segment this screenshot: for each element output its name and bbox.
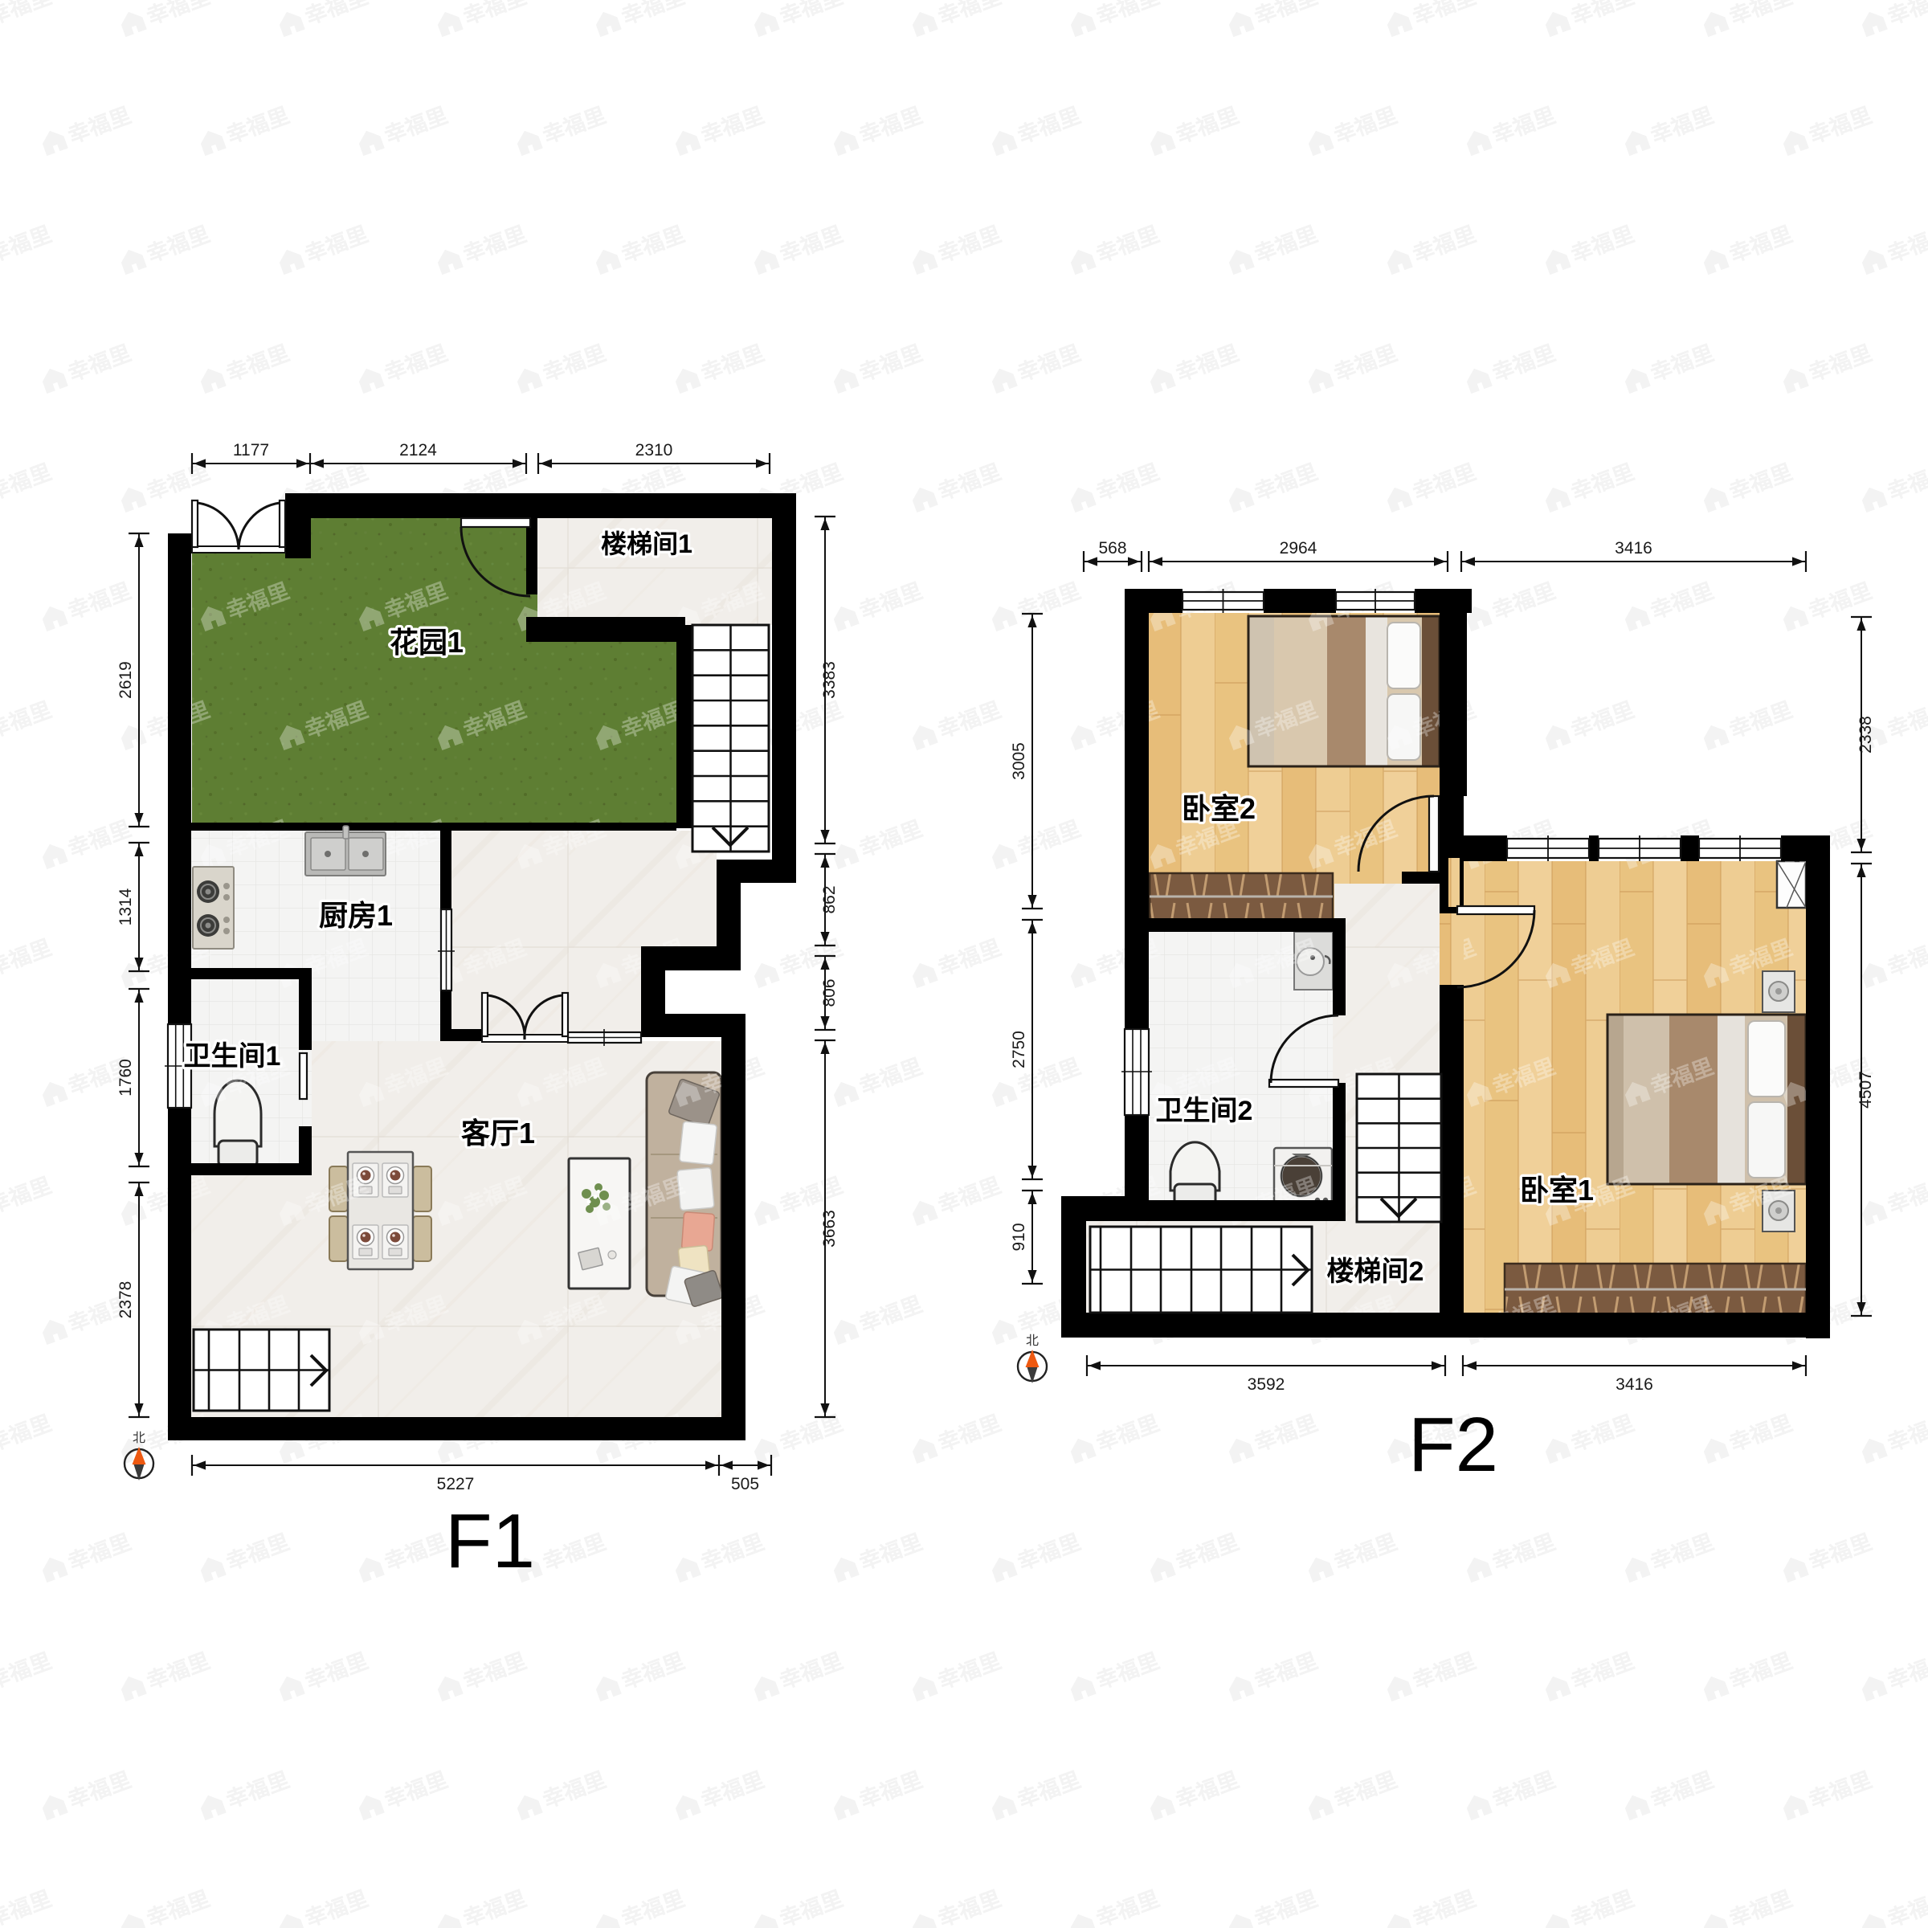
svg-text:2378: 2378 (116, 1281, 135, 1319)
svg-text:3663: 3663 (820, 1210, 839, 1248)
svg-text:568: 568 (1098, 539, 1126, 558)
svg-text:F1: F1 (445, 1498, 535, 1584)
svg-text:北: 北 (133, 1431, 145, 1445)
svg-text:3383: 3383 (820, 661, 839, 699)
svg-text:F2: F2 (1408, 1402, 1498, 1488)
svg-text:卧室2: 卧室2 (1182, 792, 1256, 825)
svg-text:1760: 1760 (116, 1059, 135, 1097)
svg-text:5227: 5227 (437, 1475, 475, 1493)
svg-text:2750: 2750 (1010, 1031, 1028, 1068)
svg-text:2964: 2964 (1280, 539, 1317, 558)
svg-text:卧室1: 卧室1 (1520, 1174, 1594, 1207)
svg-text:3416: 3416 (1616, 1375, 1653, 1394)
svg-text:2619: 2619 (116, 661, 135, 699)
svg-text:910: 910 (1010, 1223, 1028, 1251)
svg-text:厨房1: 厨房1 (319, 899, 393, 932)
svg-text:3416: 3416 (1615, 539, 1652, 558)
svg-text:楼梯间2: 楼梯间2 (1327, 1256, 1424, 1287)
svg-text:楼梯间1: 楼梯间1 (601, 529, 692, 558)
svg-text:1177: 1177 (233, 441, 269, 460)
svg-text:卫生间1: 卫生间1 (184, 1041, 281, 1072)
svg-text:862: 862 (820, 885, 839, 913)
svg-text:3592: 3592 (1248, 1375, 1285, 1394)
svg-text:4507: 4507 (1857, 1071, 1875, 1109)
svg-text:505: 505 (731, 1475, 759, 1493)
svg-text:2338: 2338 (1857, 716, 1875, 754)
svg-text:客厅1: 客厅1 (461, 1117, 535, 1150)
svg-text:1314: 1314 (116, 888, 135, 925)
svg-text:806: 806 (820, 978, 839, 1007)
svg-text:3005: 3005 (1010, 742, 1028, 780)
svg-text:卫生间2: 卫生间2 (1156, 1096, 1253, 1126)
svg-text:2124: 2124 (399, 441, 437, 460)
svg-text:花园1: 花园1 (390, 626, 464, 659)
svg-text:2310: 2310 (635, 441, 673, 460)
svg-text:北: 北 (1026, 1334, 1039, 1348)
